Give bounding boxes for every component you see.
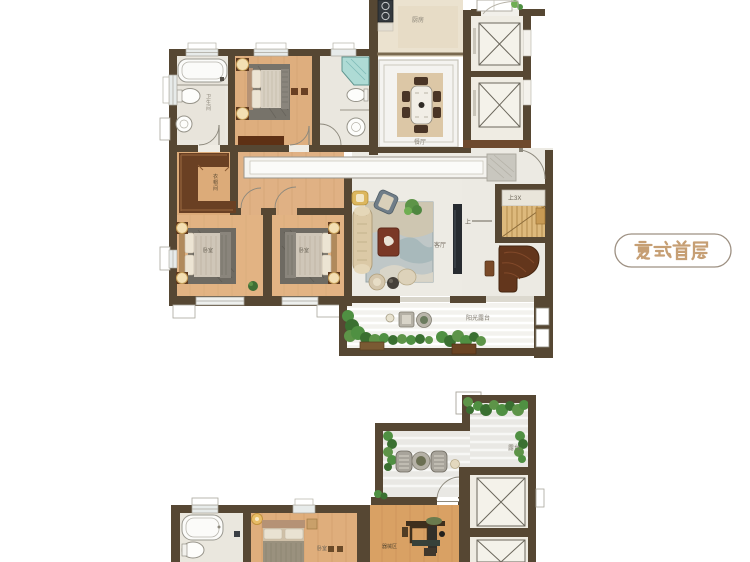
svg-text:餐厅: 餐厅 bbox=[414, 138, 426, 146]
svg-text:卧室: 卧室 bbox=[317, 545, 327, 552]
svg-text:卧室: 卧室 bbox=[299, 247, 309, 254]
svg-text:衣帽间: 衣帽间 bbox=[213, 173, 218, 192]
svg-text:厨房: 厨房 bbox=[412, 16, 424, 24]
svg-text:客厅: 客厅 bbox=[434, 241, 446, 249]
svg-text:器械区: 器械区 bbox=[382, 543, 397, 550]
svg-text:上3X: 上3X bbox=[508, 194, 521, 202]
svg-text:上: 上 bbox=[465, 218, 471, 226]
svg-text:阳光露台: 阳光露台 bbox=[466, 314, 490, 322]
svg-text:卧室: 卧室 bbox=[203, 247, 213, 254]
svg-text:露台: 露台 bbox=[508, 444, 520, 452]
svg-text:卫生间: 卫生间 bbox=[206, 94, 211, 112]
